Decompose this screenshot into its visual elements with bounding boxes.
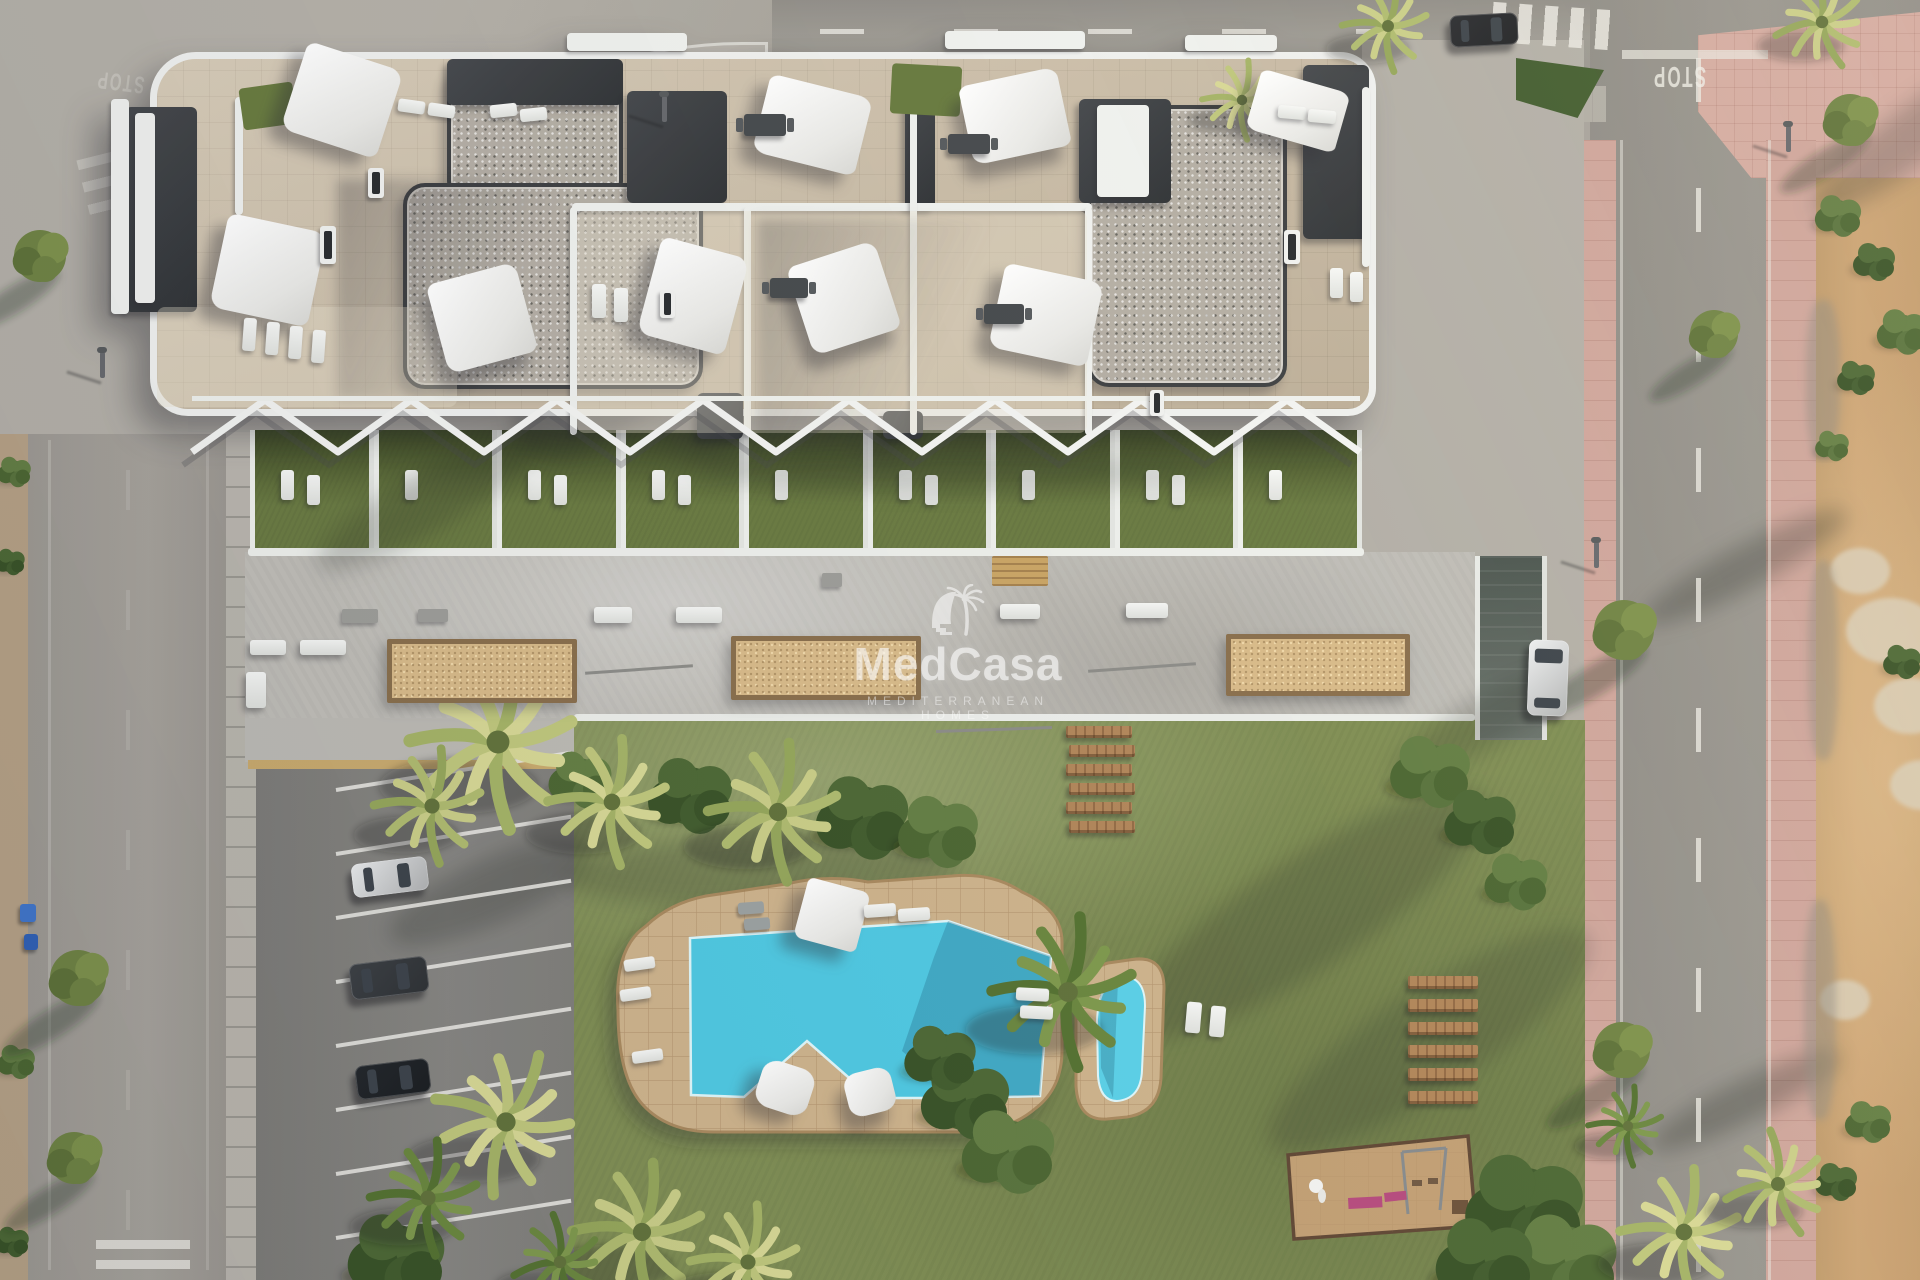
wooden-step: [1066, 764, 1132, 776]
car-rear-window: [1460, 20, 1469, 42]
wood-bench: [1408, 1068, 1478, 1081]
wood-pergola-table: [992, 556, 1048, 586]
sand-planter: [387, 639, 577, 703]
shade-sail: [426, 262, 539, 375]
car-rear-window: [363, 868, 375, 892]
sun-lounger: [397, 98, 426, 115]
lamp-head: [97, 347, 107, 353]
car: [1449, 12, 1519, 48]
car: [354, 1058, 432, 1101]
shade-sail: [209, 213, 327, 328]
sun-lounger: [864, 903, 897, 918]
sun-lounger: [427, 102, 456, 119]
car: [350, 855, 430, 898]
lamp-shadow: [66, 371, 101, 385]
wood-bench: [1408, 1091, 1478, 1104]
handrail: [585, 664, 693, 675]
wood-bench: [1408, 976, 1478, 989]
bench: [594, 607, 632, 623]
bench: [250, 640, 286, 655]
lounge-pillow: [752, 1057, 818, 1119]
sun-lounger: [1185, 1001, 1203, 1033]
car-rear-window: [1534, 697, 1560, 709]
sun-lounger: [1016, 987, 1050, 1002]
shade-sail: [786, 240, 902, 356]
skylight-glass: [324, 231, 331, 260]
wooden-step: [1066, 802, 1132, 814]
aerial-render: STOPSTOP MedCasa MEDITERRANEAN HOMES: [0, 0, 1920, 1280]
street-lamp: [1594, 542, 1599, 568]
wooden-step: [1069, 821, 1135, 833]
watermark-brand: MedCasa: [828, 637, 1088, 691]
skylight-glass: [1154, 393, 1160, 413]
bench: [300, 640, 346, 655]
wooden-step: [1069, 745, 1135, 757]
roof-skylight: [660, 290, 675, 318]
chair: [736, 118, 743, 131]
sun-lounger: [311, 330, 326, 364]
shade-sail: [793, 877, 871, 953]
wood-bench: [1408, 1045, 1478, 1058]
car: [1527, 639, 1570, 716]
sun-lounger: [242, 318, 257, 352]
sun-lounger: [1277, 105, 1306, 120]
sun-lounger: [288, 326, 303, 360]
outdoor-dining-set: [948, 134, 990, 154]
recycling-bin: [24, 934, 38, 950]
lamp-shadow: [1752, 145, 1787, 159]
roof-skylight: [320, 226, 336, 264]
utility-box: [418, 609, 448, 622]
wood-bench: [1408, 1022, 1478, 1035]
sun-lounger: [898, 907, 931, 922]
watermark-tagline: MEDITERRANEAN HOMES: [828, 694, 1088, 722]
watermark: MedCasa MEDITERRANEAN HOMES: [828, 584, 1088, 704]
street-lamp: [1786, 126, 1791, 152]
sun-lounger: [614, 288, 628, 322]
sun-lounger: [519, 107, 547, 123]
medcasa-logo-palm-icon: [926, 584, 990, 636]
lamp-shadow: [628, 115, 663, 129]
car-windshield: [396, 862, 411, 888]
sun-lounger: [1209, 1005, 1227, 1037]
lamp-head: [1783, 121, 1793, 127]
skylight-glass: [664, 293, 671, 314]
outdoor-dining-set: [744, 114, 786, 136]
sand-planter: [1226, 634, 1410, 696]
bench: [676, 607, 722, 623]
roof-skylight: [1150, 390, 1164, 416]
wooden-step: [1069, 783, 1135, 795]
skylight-glass: [1288, 234, 1295, 260]
handrail: [1088, 662, 1196, 673]
car-windshield: [1490, 18, 1502, 42]
sun-lounger: [592, 284, 606, 318]
roof-skylight: [1284, 230, 1300, 264]
car-windshield: [399, 1064, 414, 1090]
wood-bench: [1408, 999, 1478, 1012]
sun-lounger: [623, 956, 655, 972]
outdoor-dining-set: [984, 304, 1024, 324]
chair: [976, 308, 983, 320]
sun-lounger: [265, 322, 280, 356]
street-lamp: [100, 352, 105, 378]
shade-sail: [637, 236, 750, 356]
roof-skylight: [368, 168, 384, 198]
street-lamp: [662, 96, 667, 122]
shade-sail: [280, 41, 404, 159]
car-rear-window: [361, 968, 373, 993]
chair: [762, 282, 769, 294]
sun-lounger: [1350, 272, 1363, 302]
recycling-bin: [20, 904, 36, 922]
car-rear-window: [367, 1070, 379, 1094]
lounge-pillow: [841, 1065, 898, 1119]
chair: [1025, 308, 1032, 320]
chair: [787, 118, 794, 131]
wooden-step: [1066, 726, 1132, 738]
gray-lounger: [744, 917, 771, 931]
sun-lounger: [619, 986, 651, 1002]
sun-lounger: [1020, 1005, 1054, 1020]
sun-lounger: [631, 1048, 663, 1064]
lamp-head: [659, 91, 669, 97]
chair: [991, 138, 998, 150]
lamp-shadow: [1560, 561, 1595, 575]
chair: [809, 282, 816, 294]
gray-lounger: [738, 901, 765, 915]
bench: [1126, 603, 1168, 618]
utility-box: [342, 609, 378, 623]
car-windshield: [395, 963, 411, 990]
chair: [940, 138, 947, 150]
lamp-head: [1591, 537, 1601, 543]
handrail: [936, 726, 1052, 733]
skylight-glass: [372, 172, 379, 195]
bench: [246, 672, 266, 708]
car: [348, 955, 430, 1000]
outdoor-dining-set: [770, 278, 808, 298]
sun-lounger: [1307, 109, 1336, 124]
car-windshield: [1534, 649, 1563, 664]
sun-lounger: [1330, 268, 1343, 298]
sun-lounger: [489, 103, 517, 119]
